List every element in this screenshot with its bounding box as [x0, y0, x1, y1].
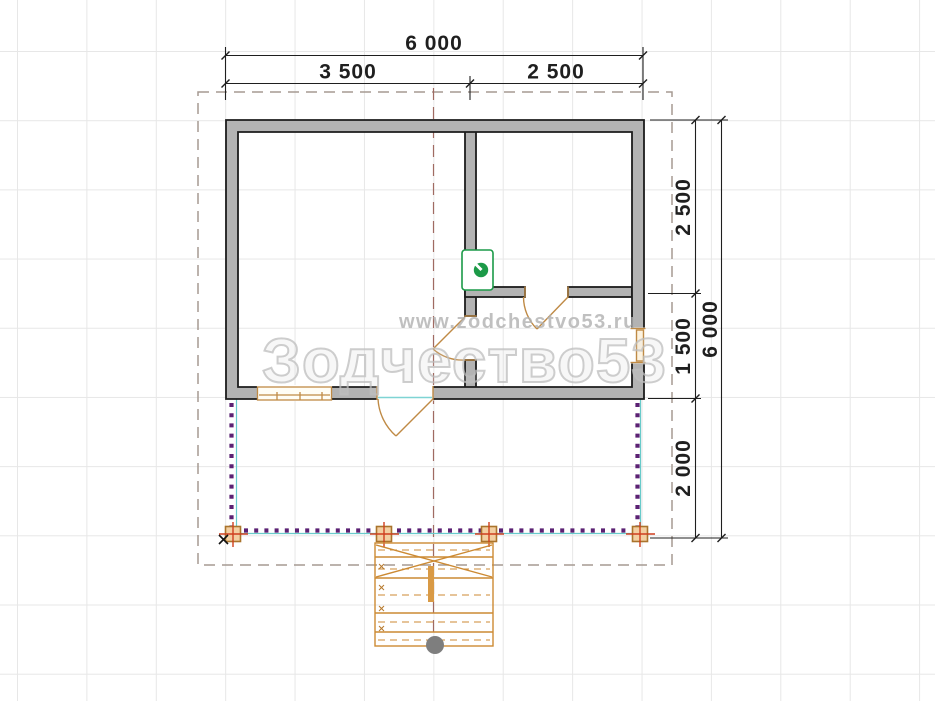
dim-top-total: 6 000	[405, 32, 463, 55]
dim-right-seg1: 2 500	[672, 178, 695, 236]
door-swing-arc	[378, 399, 396, 436]
door-partition-horizontal	[524, 287, 569, 330]
door-swing-arc	[524, 297, 538, 329]
roof-overhang-outline	[198, 92, 672, 565]
interior-wall-vertical-upper	[465, 126, 476, 251]
dim-top-right: 2 500	[527, 61, 585, 84]
dim-right-total: 6 000	[699, 300, 722, 358]
floor-plan-canvas: 6 000 3 500 2 500 2 500 1 500 2 000 6 00…	[0, 0, 935, 701]
dim-top-left: 3 500	[319, 61, 377, 84]
dimension-labels: 6 000 3 500 2 500 2 500 1 500 2 000 6 00…	[319, 32, 722, 497]
dim-right-seg2: 1 500	[672, 317, 695, 375]
door-leaf	[637, 330, 644, 361]
entrance-stairs	[375, 543, 493, 654]
post	[219, 522, 248, 547]
plan-drawing: 6 000 3 500 2 500 2 500 1 500 2 000 6 00…	[0, 0, 935, 701]
door-leaf	[433, 317, 465, 349]
stair-newel-dot	[426, 636, 444, 654]
stair-x-marks	[379, 564, 384, 631]
window-bottom-wall	[258, 387, 332, 400]
door-leaf	[396, 399, 433, 436]
terrace-dotted-boundary	[232, 403, 638, 531]
terrace-deck-edge	[226, 399, 644, 534]
door-swing-arc	[433, 349, 465, 360]
door-partition-vertical	[433, 316, 477, 360]
dim-right-seg3: 2 000	[672, 439, 695, 497]
exterior-walls	[226, 120, 644, 399]
stove-icon	[462, 250, 493, 290]
stair-stringer-hatch	[428, 566, 434, 602]
interior-wall-horizontal-right	[568, 287, 632, 297]
post	[626, 522, 655, 547]
door-leaf	[537, 297, 568, 329]
